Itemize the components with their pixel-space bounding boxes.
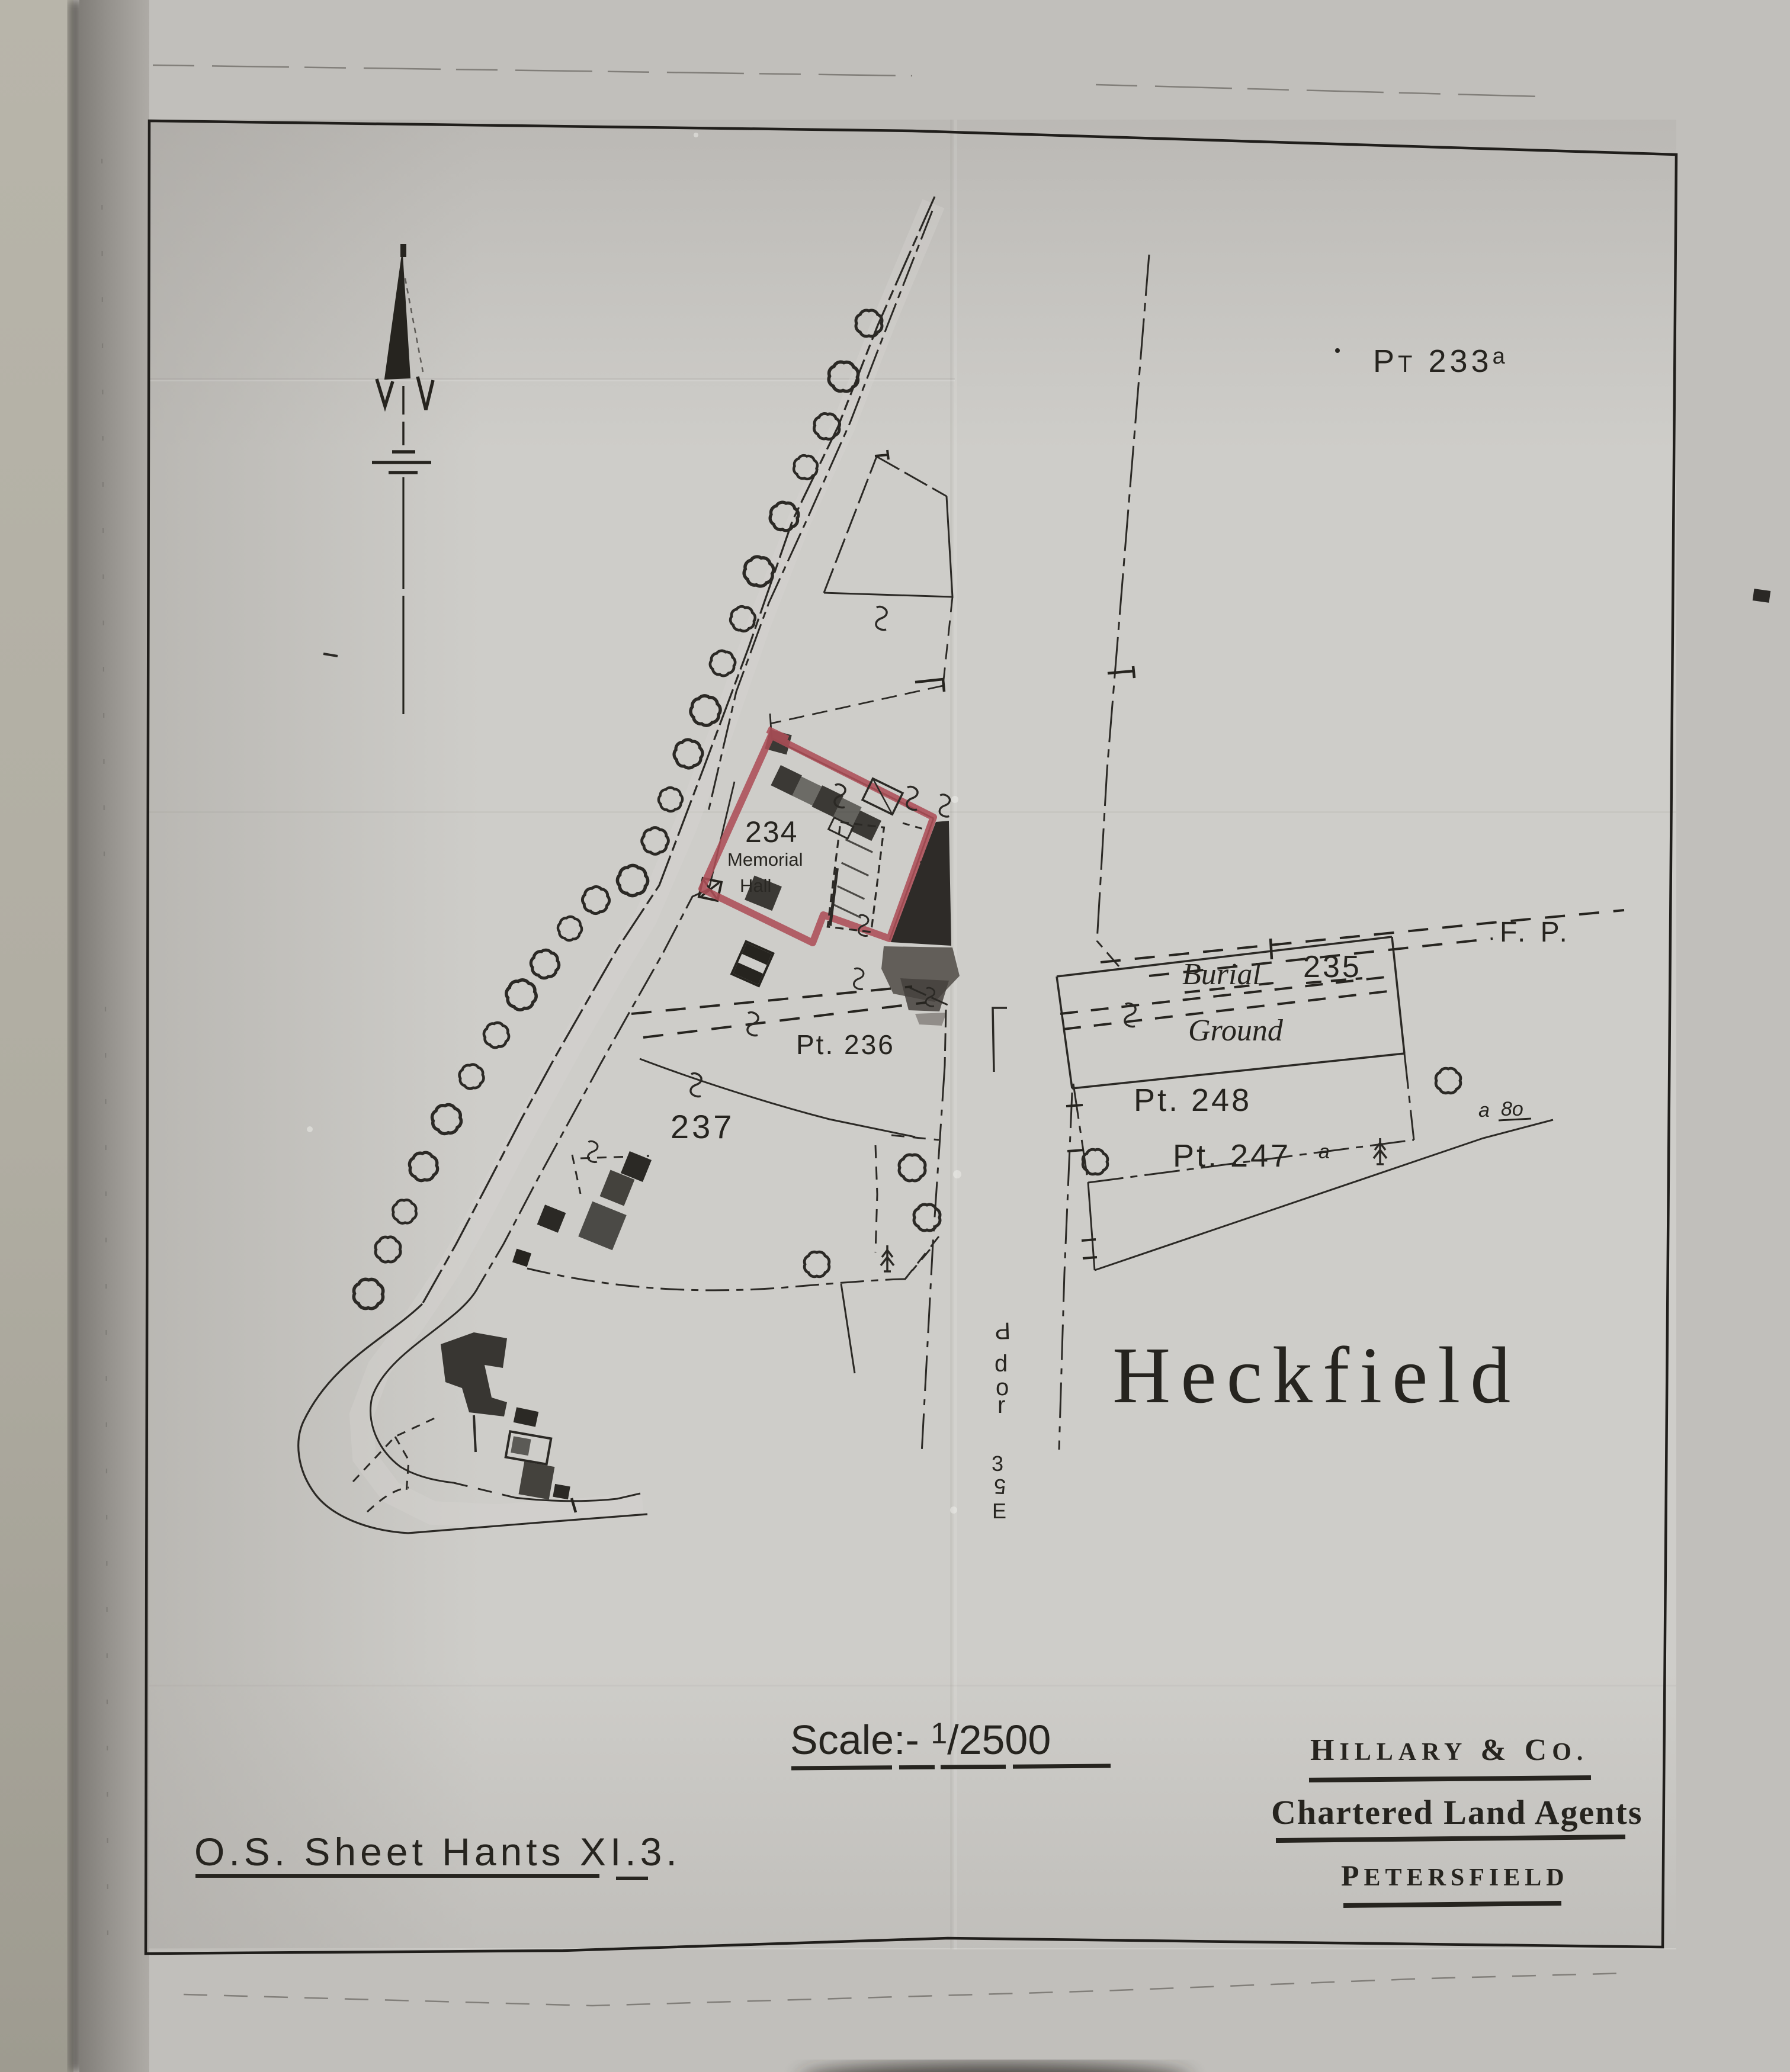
svg-text:Ground: Ground	[1188, 1014, 1284, 1048]
svg-text:HILLARY & CO.: HILLARY & CO.	[1310, 1733, 1588, 1767]
svg-text:3: 3	[992, 1451, 1003, 1476]
svg-text:O.S. Sheet Hants XI.3.: O.S. Sheet Hants XI.3.	[194, 1830, 681, 1874]
svg-text:234: 234	[745, 815, 798, 849]
svg-text:PETERSFIELD: PETERSFIELD	[1341, 1859, 1569, 1892]
svg-text:Memorial: Memorial	[727, 849, 803, 870]
svg-text:237: 237	[671, 1108, 734, 1145]
svg-text:Heckfield: Heckfield	[1112, 1331, 1520, 1420]
svg-text:5: 5	[993, 1475, 1006, 1499]
svg-text:Pt. 248: Pt. 248	[1134, 1082, 1252, 1118]
svg-text:r: r	[997, 1392, 1005, 1418]
svg-text:F. P.: F. P.	[1500, 917, 1571, 948]
svg-text:E: E	[992, 1499, 1006, 1523]
svg-text:PT 233a: PT 233a	[1373, 343, 1509, 379]
svg-text:8o: 8o	[1501, 1098, 1523, 1120]
svg-text:a: a	[1319, 1141, 1330, 1163]
svg-text:Chartered Land Agents: Chartered Land Agents	[1271, 1793, 1643, 1832]
svg-text:235: 235	[1303, 950, 1362, 984]
svg-text:a: a	[1478, 1099, 1490, 1122]
svg-text:Pt. 247: Pt. 247	[1173, 1138, 1291, 1174]
svg-text:Scale:- 1/2500: Scale:- 1/2500	[790, 1717, 1051, 1763]
svg-text:d: d	[995, 1351, 1008, 1377]
svg-text:P: P	[995, 1318, 1011, 1344]
svg-text:Pt. 236: Pt. 236	[796, 1029, 895, 1060]
